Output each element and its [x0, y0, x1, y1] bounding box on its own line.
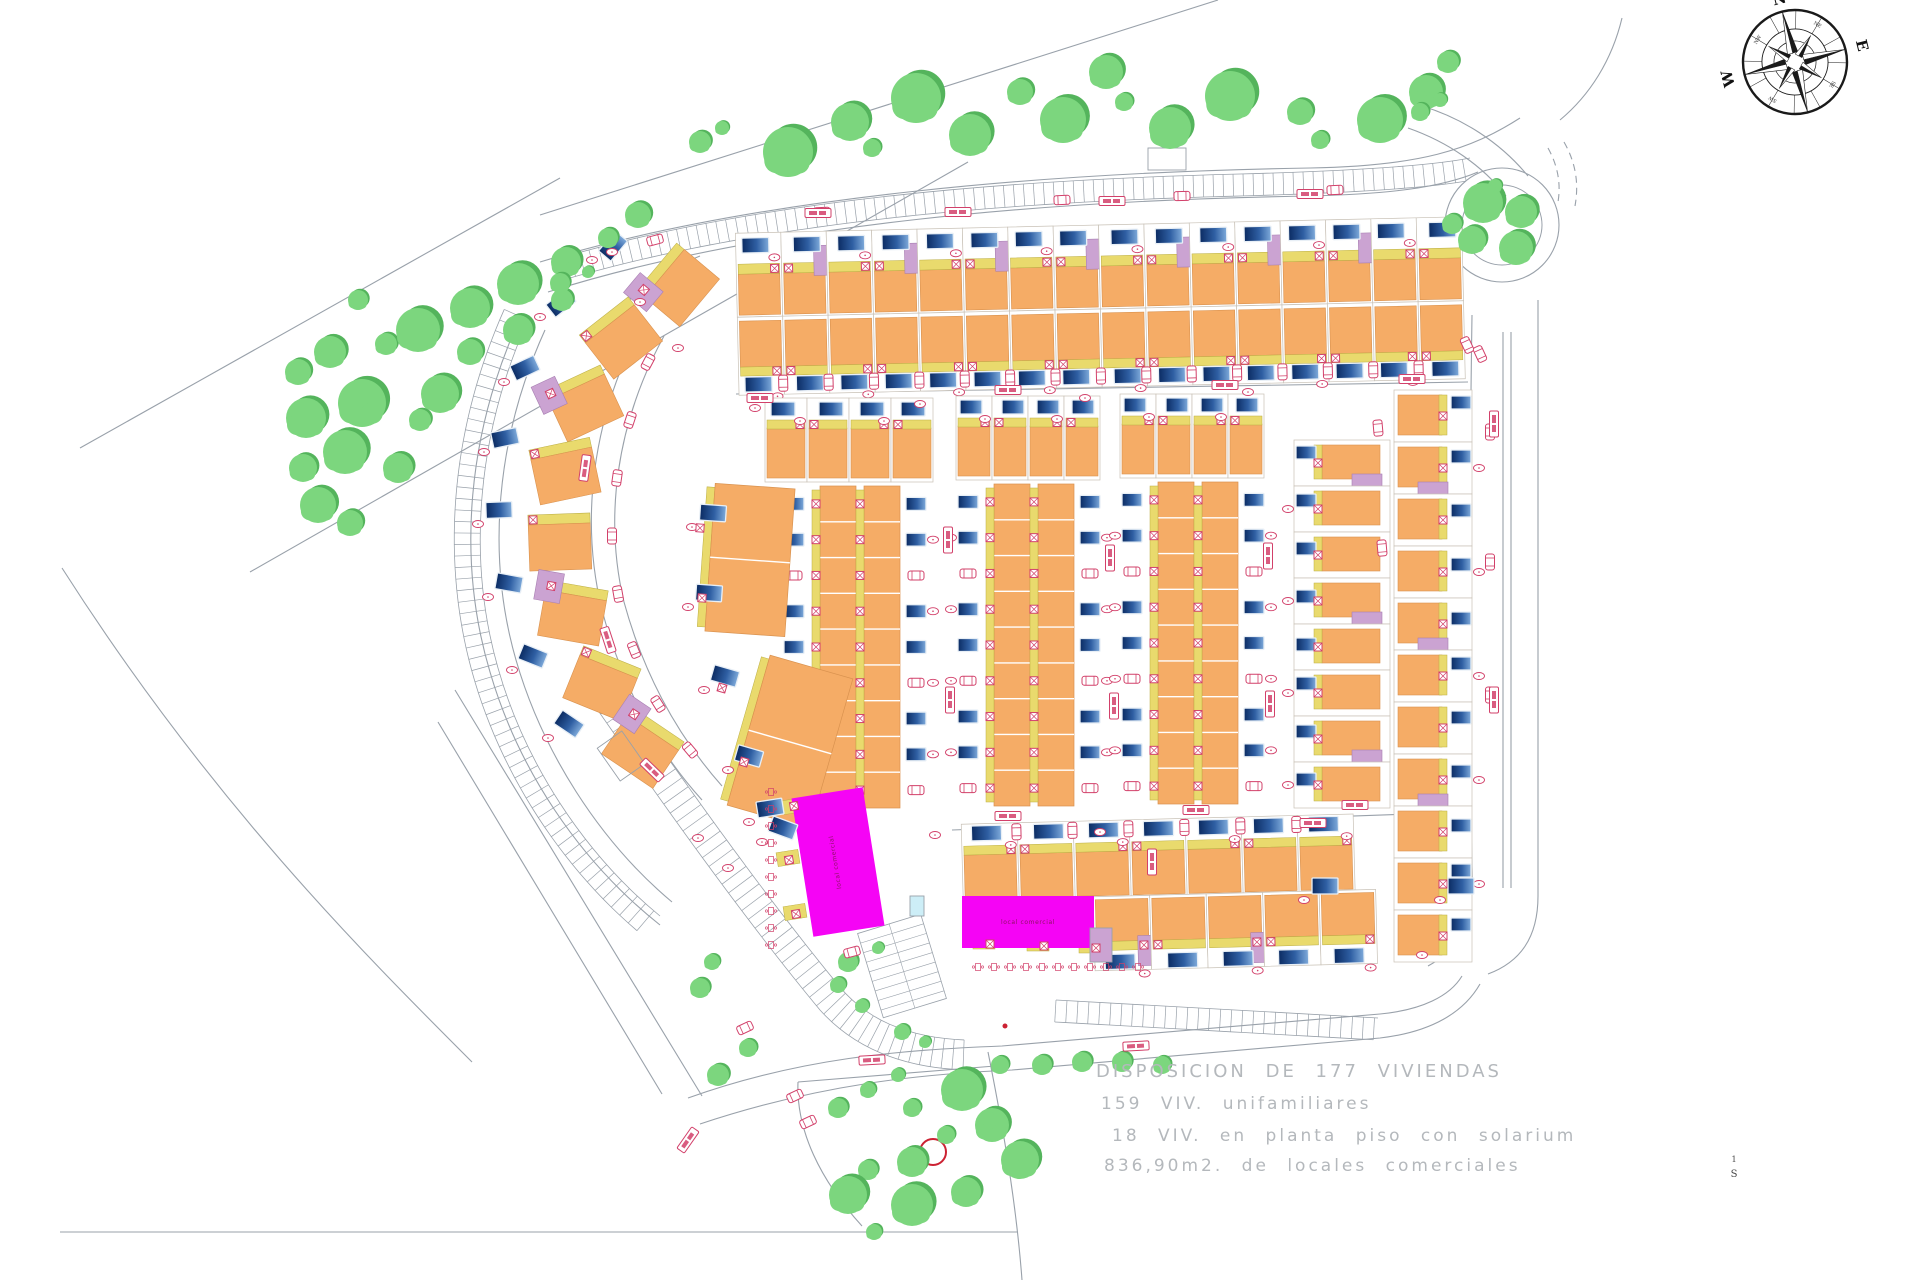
pool [1122, 637, 1142, 650]
house [1193, 310, 1235, 357]
bench-stamp [765, 908, 776, 915]
access-stamp [1150, 603, 1158, 611]
access-stamp [1439, 516, 1447, 524]
car-stamp [915, 372, 924, 388]
access-stamp [875, 262, 883, 270]
pool [1288, 225, 1315, 241]
rowhouse-block [864, 486, 900, 808]
plot-number-stamp [1243, 389, 1254, 396]
plot-number-stamp [635, 299, 646, 306]
pool [756, 798, 784, 818]
car-stamp [779, 375, 788, 391]
pool [974, 371, 1001, 387]
plot-number-stamp [1132, 246, 1143, 253]
access-stamp [986, 677, 994, 685]
plot-number-stamp [1223, 243, 1234, 250]
plot-number-stamp [950, 250, 961, 257]
street-label-stamp [1123, 1041, 1149, 1051]
tree [828, 1097, 850, 1118]
pool [1037, 400, 1059, 414]
pool [841, 374, 868, 390]
access-stamp [1045, 361, 1053, 369]
pool [1124, 398, 1146, 412]
pool [745, 376, 772, 392]
plot-number-stamp [1283, 782, 1294, 789]
car-stamp [736, 1021, 754, 1036]
legend-line-2: 159 VIV. unifamiliares [1101, 1094, 1372, 1114]
car-stamp [608, 528, 617, 544]
pool [1080, 710, 1100, 723]
car-stamp [1327, 185, 1343, 195]
pool [958, 531, 978, 544]
access-stamp [856, 607, 864, 615]
access-stamp [1406, 250, 1414, 258]
pool [699, 504, 726, 522]
access-stamp [739, 757, 749, 767]
bench-stamp [765, 874, 776, 881]
fan-house [529, 437, 601, 505]
pool [1336, 363, 1363, 379]
tree [891, 1181, 937, 1226]
access-stamp [696, 524, 705, 533]
pool [958, 603, 978, 616]
tree [497, 260, 543, 305]
pool [1448, 878, 1474, 894]
pool [1296, 446, 1316, 459]
house [1398, 759, 1442, 799]
road-line [1488, 300, 1538, 974]
car-stamp [1373, 420, 1383, 437]
tree [1007, 77, 1035, 105]
tree [704, 953, 721, 970]
street-label-stamp [859, 1055, 885, 1065]
road-line [1560, 18, 1622, 120]
access-stamp [1366, 935, 1374, 943]
plot-number-stamp [1044, 387, 1055, 394]
access-stamp [986, 534, 994, 542]
access-stamp [1194, 675, 1202, 683]
house [874, 270, 916, 312]
rowhouse-strip [946, 484, 1031, 806]
plot-number-stamp [1474, 673, 1485, 680]
access-stamp [530, 449, 539, 458]
access-stamp [1150, 358, 1158, 366]
plot-number-stamp [1266, 532, 1277, 539]
car-stamp [960, 371, 969, 387]
car-stamp [1012, 824, 1021, 840]
car-stamp [824, 374, 833, 390]
tree [855, 998, 870, 1013]
pool [819, 402, 843, 416]
pool [1111, 229, 1138, 245]
plot-number-stamp [699, 687, 710, 694]
access-stamp [986, 498, 994, 506]
access-stamp [1329, 252, 1337, 260]
car-stamp [908, 571, 924, 580]
street-label-stamp [946, 687, 955, 713]
plot-number-stamp [1052, 416, 1063, 423]
tree [1032, 1054, 1054, 1075]
plot-number-stamp [1404, 239, 1415, 246]
access-stamp [856, 536, 864, 544]
car-stamp [1236, 818, 1245, 834]
pool [1296, 773, 1316, 786]
plot-number-stamp [1266, 604, 1277, 611]
pool [1451, 612, 1471, 625]
pool [1236, 398, 1258, 412]
tree [866, 1223, 883, 1240]
pool [1253, 818, 1283, 834]
tree [582, 265, 595, 278]
pool [860, 402, 884, 416]
street-label-stamp [600, 626, 617, 654]
house [1398, 811, 1442, 851]
access-stamp [1439, 932, 1447, 940]
compass: N E W NE SE SW NW [1717, 0, 1872, 125]
access-stamp [986, 713, 994, 721]
pool [1059, 230, 1086, 246]
tree [625, 200, 653, 228]
car-stamp [960, 676, 976, 685]
pool [958, 495, 978, 508]
bench-stamp [972, 964, 983, 971]
car-stamp [681, 741, 698, 759]
access-stamp [1194, 639, 1202, 647]
access-stamp [856, 750, 864, 758]
car-stamp [627, 641, 641, 659]
plot-number-stamp [479, 449, 490, 456]
compass-label-e: E [1852, 38, 1872, 53]
house [1322, 767, 1380, 801]
access-stamp [1194, 496, 1202, 504]
car-stamp [1246, 674, 1262, 683]
pool [1122, 708, 1142, 721]
scale-mark-bottom: S [1731, 1169, 1738, 1180]
access-stamp [1067, 419, 1075, 427]
bench-stamp [988, 964, 999, 971]
house [785, 319, 827, 366]
access-stamp [1439, 412, 1447, 420]
access-stamp [1331, 354, 1339, 362]
plot-number-stamp [1135, 384, 1146, 391]
pool [1296, 638, 1316, 651]
pool [1244, 529, 1264, 542]
bench-stamp [1020, 964, 1031, 971]
access-stamp [1150, 567, 1158, 575]
plot-number-stamp [1435, 897, 1446, 904]
house [1322, 491, 1380, 525]
site-plan-canvas: N E W NE SE SW NW local comercial local … [0, 0, 1920, 1280]
house [1398, 915, 1442, 955]
pool [1451, 711, 1471, 724]
pool [906, 605, 926, 618]
street-label-stamp [1266, 691, 1275, 717]
pool [906, 641, 926, 654]
scale-mark-top: 1 [1731, 1155, 1736, 1164]
pool [906, 497, 926, 510]
utility-outline [910, 896, 924, 916]
pool [926, 233, 953, 249]
rowhouse-block [1038, 484, 1074, 806]
pool [1451, 396, 1471, 409]
tree [894, 1023, 911, 1040]
commercial-label-2: local comercial [1001, 919, 1055, 926]
tree [285, 357, 313, 385]
pool [495, 573, 523, 593]
house [830, 318, 872, 365]
pool [742, 238, 769, 254]
street-label-stamp [995, 812, 1021, 821]
access-stamp [1314, 735, 1322, 743]
tree [396, 305, 444, 352]
access-stamp [954, 363, 962, 371]
plot-number-stamp [507, 667, 518, 674]
tree [829, 1174, 870, 1214]
access-stamp [1030, 641, 1038, 649]
access-stamp [1150, 711, 1158, 719]
access-stamp [1030, 605, 1038, 613]
pool [1114, 368, 1141, 384]
access-stamp [784, 855, 793, 864]
house [1239, 309, 1281, 356]
pool [906, 748, 926, 761]
bench-stamp [1084, 964, 1095, 971]
tree [1115, 92, 1135, 111]
house [1398, 395, 1442, 435]
plot-number-stamp [860, 252, 871, 259]
tree [348, 289, 370, 310]
pool [1080, 531, 1100, 544]
compass-label-sw: SW [1767, 94, 1778, 104]
house [1194, 424, 1226, 474]
pool [906, 533, 926, 546]
tree [1287, 97, 1315, 125]
car-stamp [1180, 819, 1189, 835]
street-label-stamp [1110, 693, 1119, 719]
tree [991, 1055, 1011, 1074]
access-stamp [986, 641, 994, 649]
house [1030, 426, 1062, 476]
house [1238, 262, 1280, 304]
parking-strip [1055, 1000, 1378, 1040]
pool [1080, 603, 1100, 616]
plot-number-stamp [1139, 970, 1150, 977]
pool [885, 373, 912, 389]
car-stamp [1246, 782, 1262, 791]
plot-number-stamp [1266, 675, 1277, 682]
tree [903, 1098, 923, 1117]
tree [1001, 1139, 1042, 1179]
pool [1296, 542, 1316, 555]
plot-number-stamp [483, 594, 494, 601]
access-stamp [1227, 356, 1235, 364]
access-stamp [1150, 496, 1158, 504]
access-stamp [773, 367, 781, 375]
access-stamp [1314, 689, 1322, 697]
pool [1451, 450, 1471, 463]
car-stamp [1005, 370, 1014, 386]
pool [1018, 370, 1045, 386]
road-line [438, 722, 662, 1094]
house [809, 428, 847, 478]
house [958, 426, 990, 476]
road-line [62, 568, 472, 1062]
access-stamp [787, 366, 795, 374]
plot-number-stamp [1080, 395, 1091, 402]
access-stamp [1314, 643, 1322, 651]
access-stamp [1194, 567, 1202, 575]
street-label-stamp [1490, 411, 1499, 437]
access-stamp [1314, 551, 1322, 559]
house [965, 268, 1007, 310]
car-stamp [1232, 365, 1241, 381]
plot-number-stamp [587, 257, 598, 264]
house [1192, 263, 1234, 305]
car-stamp [1082, 569, 1098, 578]
pool [1155, 228, 1182, 244]
access-stamp [1194, 711, 1202, 719]
street-label-stamp [1300, 819, 1326, 828]
tree [1205, 68, 1259, 121]
plot-number-stamp [1283, 690, 1294, 697]
access-stamp [986, 748, 994, 756]
tree [337, 508, 365, 536]
pool [510, 355, 540, 380]
plot-number-stamp [946, 606, 957, 613]
access-stamp [1136, 359, 1144, 367]
pool [1200, 227, 1227, 243]
pool [1377, 223, 1404, 239]
fan-house [528, 570, 610, 647]
house [767, 428, 805, 478]
access-stamp [1140, 941, 1148, 949]
pool [1296, 725, 1316, 738]
pool [882, 234, 909, 250]
pool [958, 710, 978, 723]
plot-number-stamp [795, 418, 806, 425]
tree [1357, 94, 1407, 143]
access-stamp [856, 571, 864, 579]
access-stamp [1148, 256, 1156, 264]
pool [710, 665, 739, 688]
plot-number-stamp [1341, 833, 1352, 840]
car-stamp [612, 585, 624, 602]
fan-house [528, 513, 592, 571]
pool [1244, 637, 1264, 650]
access-stamp [1194, 603, 1202, 611]
street-label-stamp [747, 394, 773, 403]
bench-stamp [1036, 964, 1047, 971]
plot-number-stamp [1299, 897, 1310, 904]
plot-number-stamp [1417, 952, 1428, 959]
house [1208, 895, 1262, 938]
plot-number-stamp [1005, 841, 1016, 848]
access-stamp [810, 421, 818, 429]
house [994, 426, 1026, 476]
car-stamp [1377, 540, 1387, 557]
car-stamp [1082, 784, 1098, 793]
house [1328, 260, 1370, 302]
plot-number-stamp [1110, 747, 1121, 754]
tree [891, 1067, 906, 1082]
pool [554, 710, 585, 738]
pool [1080, 639, 1100, 652]
plot-number-stamp [1474, 569, 1485, 576]
access-stamp [1134, 256, 1142, 264]
tree [937, 1125, 957, 1144]
street-label-stamp [1106, 545, 1115, 571]
pool [1203, 366, 1230, 382]
plot-number-stamp [1252, 967, 1263, 974]
plot-number-stamp [928, 751, 939, 758]
access-stamp [1439, 880, 1447, 888]
plot-number-stamp [928, 536, 939, 543]
access-stamp [1043, 258, 1051, 266]
house [1012, 314, 1054, 361]
pool [906, 712, 926, 725]
pool [1122, 744, 1142, 757]
access-stamp [1420, 250, 1428, 258]
pool [491, 427, 520, 448]
access-stamp [1030, 713, 1038, 721]
access-stamp [547, 581, 556, 590]
plot-number-stamp [1474, 881, 1485, 888]
pool [1451, 504, 1471, 517]
plot-number-stamp [1117, 838, 1128, 845]
car-stamp [960, 569, 976, 578]
legend-line-1: DISPOSICION DE 177 VIVIENDAS [1096, 1061, 1502, 1082]
access-stamp [1314, 781, 1322, 789]
pool [1166, 398, 1188, 412]
pool [1292, 364, 1319, 380]
car-stamp [1187, 366, 1196, 382]
street-label-stamp [1490, 687, 1499, 713]
access-stamp [1267, 938, 1275, 946]
tree [289, 452, 319, 482]
plot-number-stamp [1216, 414, 1227, 421]
pool [1244, 708, 1264, 721]
plot-number-stamp [543, 735, 554, 742]
house [893, 428, 931, 478]
house [1020, 852, 1073, 897]
house [1148, 311, 1190, 358]
plot-number-stamp [473, 521, 484, 528]
plot-number-stamp [1313, 241, 1324, 248]
car-stamp [1246, 567, 1262, 576]
house [1420, 305, 1462, 352]
access-stamp [1408, 352, 1416, 360]
pool [1296, 494, 1316, 507]
pool [1451, 558, 1471, 571]
house [1132, 849, 1185, 894]
house-row [737, 301, 1465, 401]
street-label-stamp [1148, 849, 1157, 875]
pool [1312, 878, 1338, 894]
car-stamp [1124, 821, 1133, 837]
access-stamp [986, 569, 994, 577]
access-stamp [1030, 534, 1038, 542]
house [1398, 499, 1442, 539]
house [1230, 424, 1262, 474]
access-stamp [1194, 782, 1202, 790]
tree [715, 120, 730, 135]
tree [300, 485, 339, 523]
tree [323, 427, 371, 474]
pool [1002, 400, 1024, 414]
house [1122, 424, 1154, 474]
house [1101, 265, 1143, 307]
house [966, 315, 1008, 362]
